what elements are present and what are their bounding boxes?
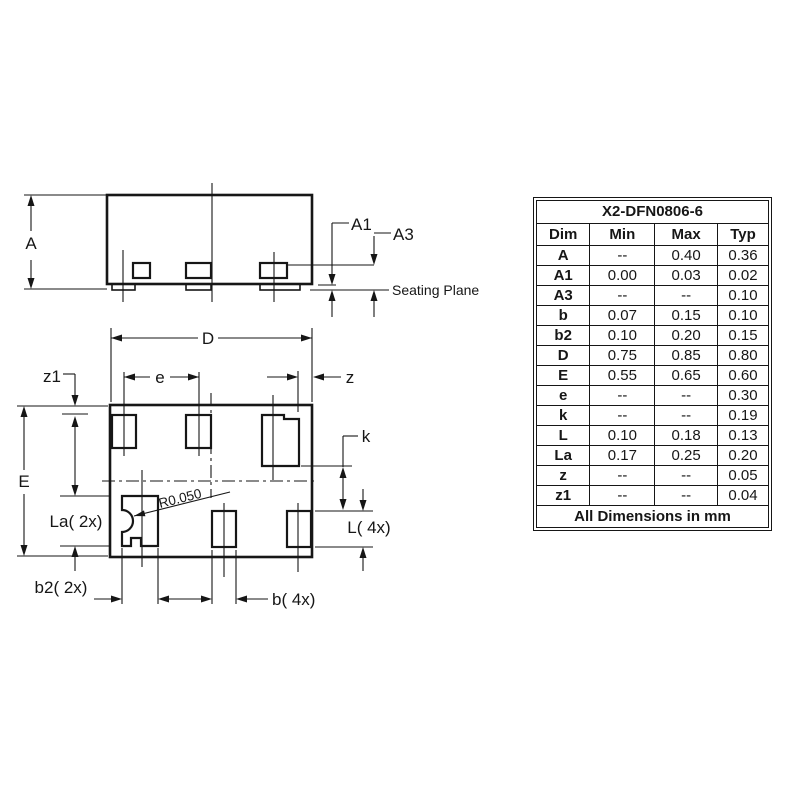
max-cell: -- [655, 286, 718, 306]
dim-A1-label: A1 [351, 215, 372, 234]
max-cell: 0.65 [655, 366, 718, 386]
dim-cell: k [537, 406, 590, 426]
pad-4-notched [122, 496, 158, 546]
typ-cell: 0.02 [717, 266, 768, 286]
dim-cell: E [537, 366, 590, 386]
dim-cell: e [537, 386, 590, 406]
dim-L: L( 4x) [315, 489, 391, 571]
dim-cell: A [537, 246, 590, 266]
table-title-row: X2-DFN0806-6 [537, 201, 769, 224]
table-header-row: Dim Min Max Typ [537, 224, 769, 246]
table-row: L0.100.180.13 [537, 426, 769, 446]
dim-e: e [124, 368, 199, 387]
typ-cell: 0.15 [717, 326, 768, 346]
min-cell: -- [590, 246, 655, 266]
table-row: E0.550.650.60 [537, 366, 769, 386]
col-header-typ: Typ [717, 224, 768, 246]
min-cell: 0.55 [590, 366, 655, 386]
typ-cell: 0.19 [717, 406, 768, 426]
dimensions-table-grid: X2-DFN0806-6 Dim Min Max Typ A--0.400.36… [536, 200, 769, 528]
typ-cell: 0.10 [717, 306, 768, 326]
side-pad-2 [186, 263, 211, 278]
table-row: e----0.30 [537, 386, 769, 406]
dim-cell: b2 [537, 326, 590, 346]
side-pad-1 [133, 263, 150, 278]
dim-E-label: E [18, 472, 29, 491]
max-cell: 0.85 [655, 346, 718, 366]
min-cell: 0.10 [590, 426, 655, 446]
table-row: k----0.19 [537, 406, 769, 426]
col-header-min: Min [590, 224, 655, 246]
table-row: A--0.400.36 [537, 246, 769, 266]
table-footer-row: All Dimensions in mm [537, 506, 769, 528]
max-cell: -- [655, 466, 718, 486]
radius-label: R0.050 [157, 486, 203, 511]
min-cell: 0.00 [590, 266, 655, 286]
dim-e-label: e [155, 368, 164, 387]
dim-cell: A3 [537, 286, 590, 306]
dim-b: b( 4x) [169, 550, 315, 609]
typ-cell: 0.04 [717, 486, 768, 506]
dim-A3-label: A3 [393, 225, 414, 244]
dim-A: A [24, 195, 107, 289]
typ-cell: 0.10 [717, 286, 768, 306]
dim-b-label: b( 4x) [272, 590, 315, 609]
table-row: z----0.05 [537, 466, 769, 486]
dim-z1: z1 [43, 367, 88, 485]
dim-E: E [17, 406, 108, 556]
col-header-dim: Dim [537, 224, 590, 246]
min-cell: -- [590, 406, 655, 426]
dim-cell: b [537, 306, 590, 326]
table-row: La0.170.250.20 [537, 446, 769, 466]
pad-3-stepped [262, 415, 299, 466]
dim-La: La( 2x) [50, 485, 109, 571]
table-row: b0.070.150.10 [537, 306, 769, 326]
table-row: D0.750.850.80 [537, 346, 769, 366]
typ-cell: 0.05 [717, 466, 768, 486]
dim-cell: L [537, 426, 590, 446]
max-cell: 0.15 [655, 306, 718, 326]
dim-cell: z [537, 466, 590, 486]
dim-b2-label: b2( 2x) [35, 578, 88, 597]
typ-cell: 0.30 [717, 386, 768, 406]
side-body-outline [107, 195, 312, 284]
side-view: A A1 A3 Seating Plane [24, 183, 479, 317]
dim-cell: D [537, 346, 590, 366]
max-cell: 0.18 [655, 426, 718, 446]
min-cell: -- [590, 386, 655, 406]
seating-plane: Seating Plane [310, 282, 479, 298]
pad-6 [287, 511, 311, 547]
dim-L-label: L( 4x) [347, 518, 390, 537]
dim-A1: A1 [318, 215, 372, 317]
table-row: b20.100.200.15 [537, 326, 769, 346]
table-footer: All Dimensions in mm [537, 506, 769, 528]
max-cell: 0.03 [655, 266, 718, 286]
max-cell: 0.40 [655, 246, 718, 266]
min-cell: 0.75 [590, 346, 655, 366]
dim-k-label: k [362, 427, 371, 446]
min-cell: -- [590, 486, 655, 506]
max-cell: -- [655, 386, 718, 406]
min-cell: 0.17 [590, 446, 655, 466]
typ-cell: 0.60 [717, 366, 768, 386]
seating-plane-label: Seating Plane [392, 282, 479, 298]
dim-D-label: D [202, 329, 214, 348]
dim-z-label: z [346, 368, 355, 387]
bottom-view: D e z z1 [17, 328, 391, 609]
typ-cell: 0.13 [717, 426, 768, 446]
dim-cell: A1 [537, 266, 590, 286]
dim-A-label: A [25, 234, 37, 253]
table-row: A10.000.030.02 [537, 266, 769, 286]
max-cell: 0.25 [655, 446, 718, 466]
max-cell: -- [655, 486, 718, 506]
dim-cell: La [537, 446, 590, 466]
typ-cell: 0.36 [717, 246, 768, 266]
max-cell: 0.20 [655, 326, 718, 346]
dim-D: D [111, 328, 312, 402]
min-cell: -- [590, 286, 655, 306]
dim-z1-label: z1 [43, 367, 61, 386]
table-title: X2-DFN0806-6 [537, 201, 769, 224]
dim-La-label: La( 2x) [50, 512, 103, 531]
dimensions-table: X2-DFN0806-6 Dim Min Max Typ A--0.400.36… [533, 197, 772, 531]
dim-A3: A3 [287, 225, 414, 317]
min-cell: -- [590, 466, 655, 486]
col-header-max: Max [655, 224, 718, 246]
dim-cell: z1 [537, 486, 590, 506]
table-row: z1----0.04 [537, 486, 769, 506]
min-cell: 0.10 [590, 326, 655, 346]
typ-cell: 0.80 [717, 346, 768, 366]
min-cell: 0.07 [590, 306, 655, 326]
max-cell: -- [655, 406, 718, 426]
table-row: A3----0.10 [537, 286, 769, 306]
typ-cell: 0.20 [717, 446, 768, 466]
